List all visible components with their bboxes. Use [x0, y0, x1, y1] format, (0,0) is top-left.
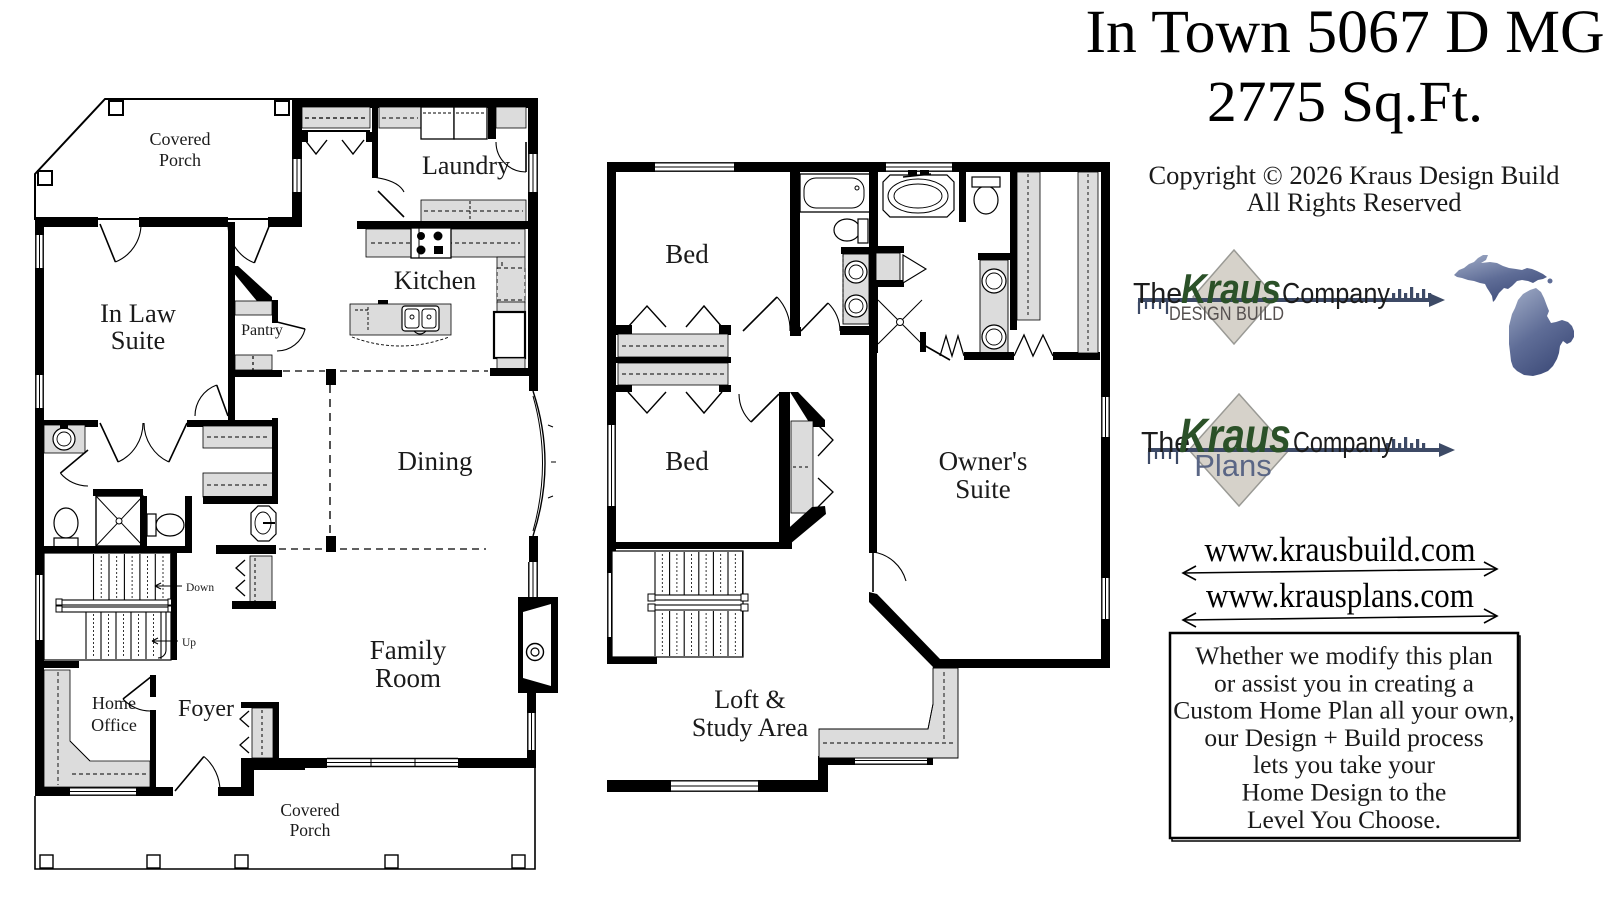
- svg-text:Company: Company: [1282, 278, 1391, 310]
- svg-text:Laundry: Laundry: [422, 151, 510, 180]
- svg-text:Porch: Porch: [290, 820, 331, 840]
- svg-text:Pantry: Pantry: [241, 322, 283, 339]
- svg-text:All Rights Reserved: All Rights Reserved: [1247, 187, 1462, 217]
- svg-text:Copyright © 2026 Kraus Design: Copyright © 2026 Kraus Design Build: [1149, 160, 1560, 190]
- svg-text:or assist you in creating a: or assist you in creating a: [1214, 668, 1474, 697]
- svg-text:DESIGN BUILD: DESIGN BUILD: [1169, 303, 1284, 325]
- svg-text:2775 Sq.Ft.: 2775 Sq.Ft.: [1207, 69, 1483, 134]
- svg-text:Level You Choose.: Level You Choose.: [1247, 805, 1441, 834]
- svg-text:Family: Family: [370, 635, 447, 665]
- svg-text:Kitchen: Kitchen: [394, 266, 476, 295]
- svg-text:Owner's: Owner's: [939, 446, 1028, 476]
- svg-text:Foyer: Foyer: [178, 696, 234, 722]
- svg-text:In Law: In Law: [100, 298, 177, 328]
- svg-text:Whether we modify this plan: Whether we modify this plan: [1195, 641, 1493, 670]
- svg-text:In Town 5067 D MG: In Town 5067 D MG: [1086, 0, 1605, 66]
- svg-text:Room: Room: [375, 663, 441, 693]
- svg-text:Down: Down: [186, 582, 214, 594]
- svg-text:Company: Company: [1293, 427, 1394, 459]
- svg-text:our Design + Build process: our Design + Build process: [1204, 723, 1483, 752]
- svg-text:Bed: Bed: [665, 239, 709, 269]
- svg-text:www.krausbuild.com: www.krausbuild.com: [1205, 530, 1476, 569]
- svg-text:Home: Home: [92, 693, 136, 713]
- svg-text:Suite: Suite: [111, 325, 165, 355]
- svg-text:Loft &: Loft &: [714, 685, 786, 714]
- svg-text:Study Area: Study Area: [692, 713, 809, 742]
- svg-text:Covered: Covered: [280, 800, 340, 820]
- svg-text:Home Design to the: Home Design to the: [1242, 778, 1447, 807]
- svg-text:Bed: Bed: [665, 446, 709, 476]
- svg-text:Custom Home Plan all your own,: Custom Home Plan all your own,: [1173, 696, 1514, 725]
- svg-text:Porch: Porch: [159, 150, 201, 170]
- svg-text:Plans: Plans: [1194, 448, 1272, 483]
- svg-text:lets you take your: lets you take your: [1253, 750, 1436, 779]
- svg-text:Up: Up: [182, 637, 196, 649]
- svg-text:www.krausplans.com: www.krausplans.com: [1206, 576, 1474, 615]
- svg-text:Office: Office: [91, 715, 137, 735]
- svg-text:Suite: Suite: [955, 474, 1011, 504]
- svg-text:Dining: Dining: [397, 446, 472, 476]
- svg-text:Covered: Covered: [150, 129, 211, 149]
